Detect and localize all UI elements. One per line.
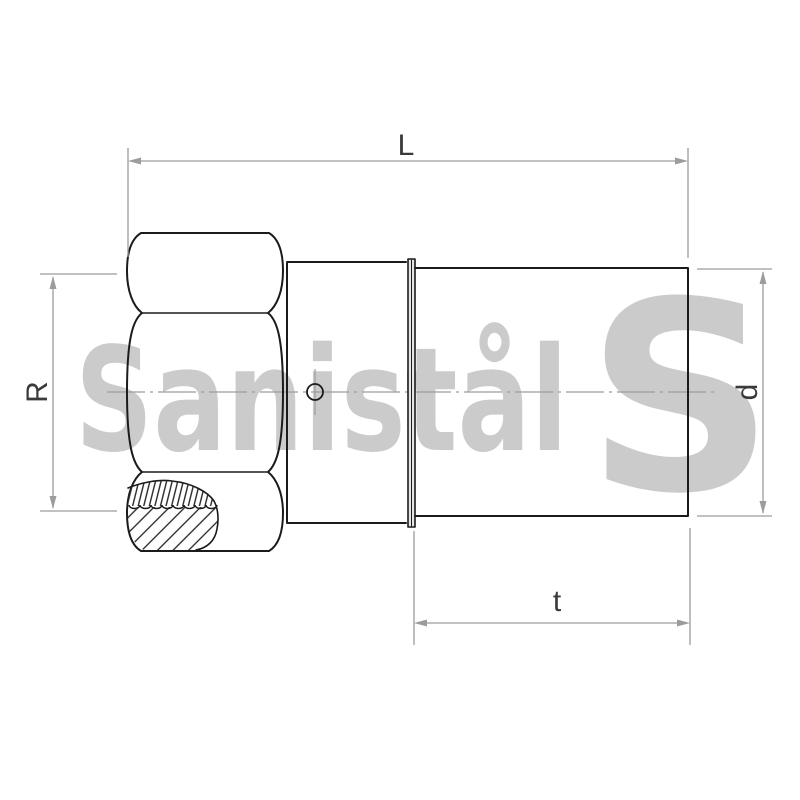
dim-t-label: t [553,585,562,618]
section-hatch-fill [128,507,219,550]
watermark-brand-text: Sanistål [75,316,568,484]
technical-drawing-page: Sanistål S L [0,0,800,800]
dim-R-label: R [21,381,54,403]
dim-d-label: d [731,384,764,401]
dim-L-label: L [398,129,415,162]
drawing-canvas: Sanistål S L [0,0,800,800]
